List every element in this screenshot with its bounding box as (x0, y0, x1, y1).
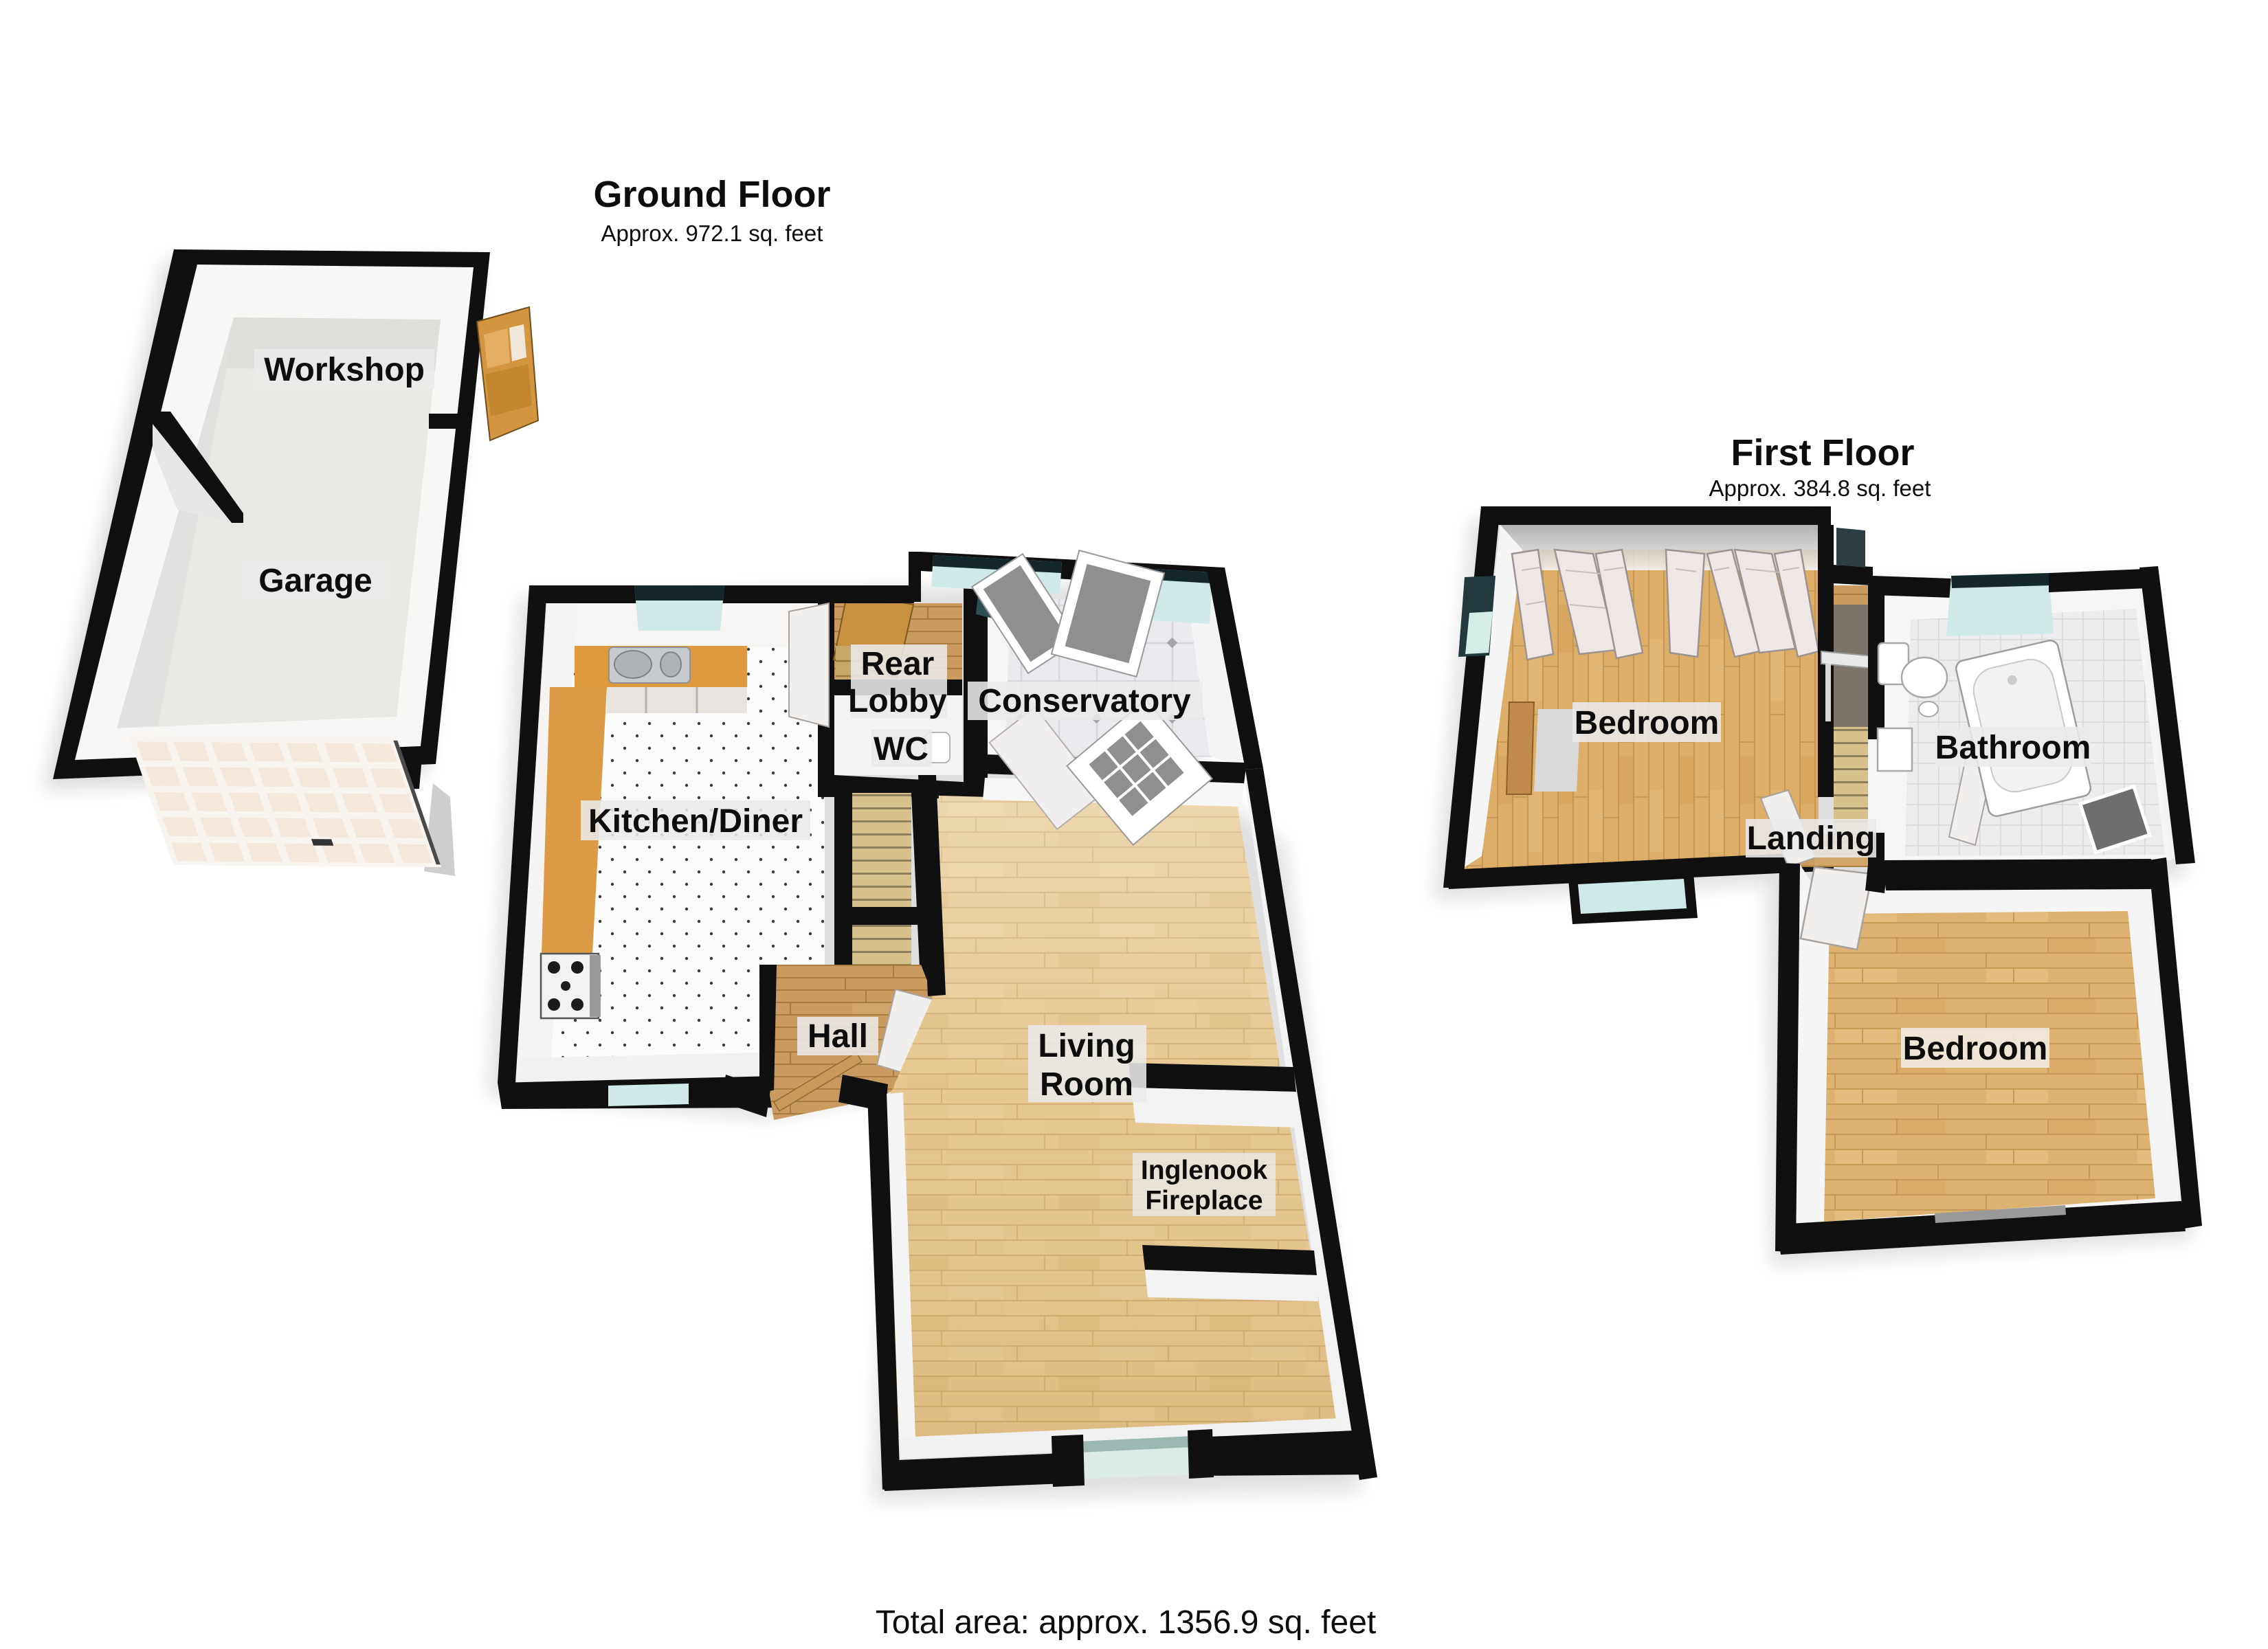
svg-text:Total area: approx. 1356.9 sq.: Total area: approx. 1356.9 sq. feet (876, 1604, 1376, 1641)
svg-text:Kitchen/Diner: Kitchen/Diner (588, 803, 803, 840)
svg-text:Inglenook: Inglenook (1141, 1156, 1267, 1185)
svg-text:WC: WC (874, 731, 929, 767)
svg-text:Ground Floor: Ground Floor (594, 174, 831, 215)
svg-text:Fireplace: Fireplace (1145, 1186, 1263, 1215)
svg-text:Workshop: Workshop (264, 352, 425, 388)
svg-text:Living: Living (1038, 1028, 1135, 1064)
svg-text:Landing: Landing (1747, 820, 1876, 857)
svg-text:Hall: Hall (808, 1018, 868, 1055)
svg-text:Bedroom: Bedroom (1903, 1031, 2048, 1067)
svg-text:Bedroom: Bedroom (1575, 705, 1720, 741)
svg-text:Lobby: Lobby (848, 683, 947, 719)
svg-text:Approx. 972.1 sq. feet: Approx. 972.1 sq. feet (601, 221, 823, 246)
svg-text:Garage: Garage (258, 563, 372, 599)
svg-text:Room: Room (1040, 1066, 1133, 1103)
svg-text:Conservatory: Conservatory (978, 683, 1191, 719)
svg-text:Bathroom: Bathroom (1935, 730, 2091, 766)
svg-text:Rear: Rear (861, 646, 935, 682)
svg-text:Approx. 384.8 sq. feet: Approx. 384.8 sq. feet (1709, 475, 1931, 501)
svg-text:First Floor: First Floor (1731, 432, 1915, 473)
